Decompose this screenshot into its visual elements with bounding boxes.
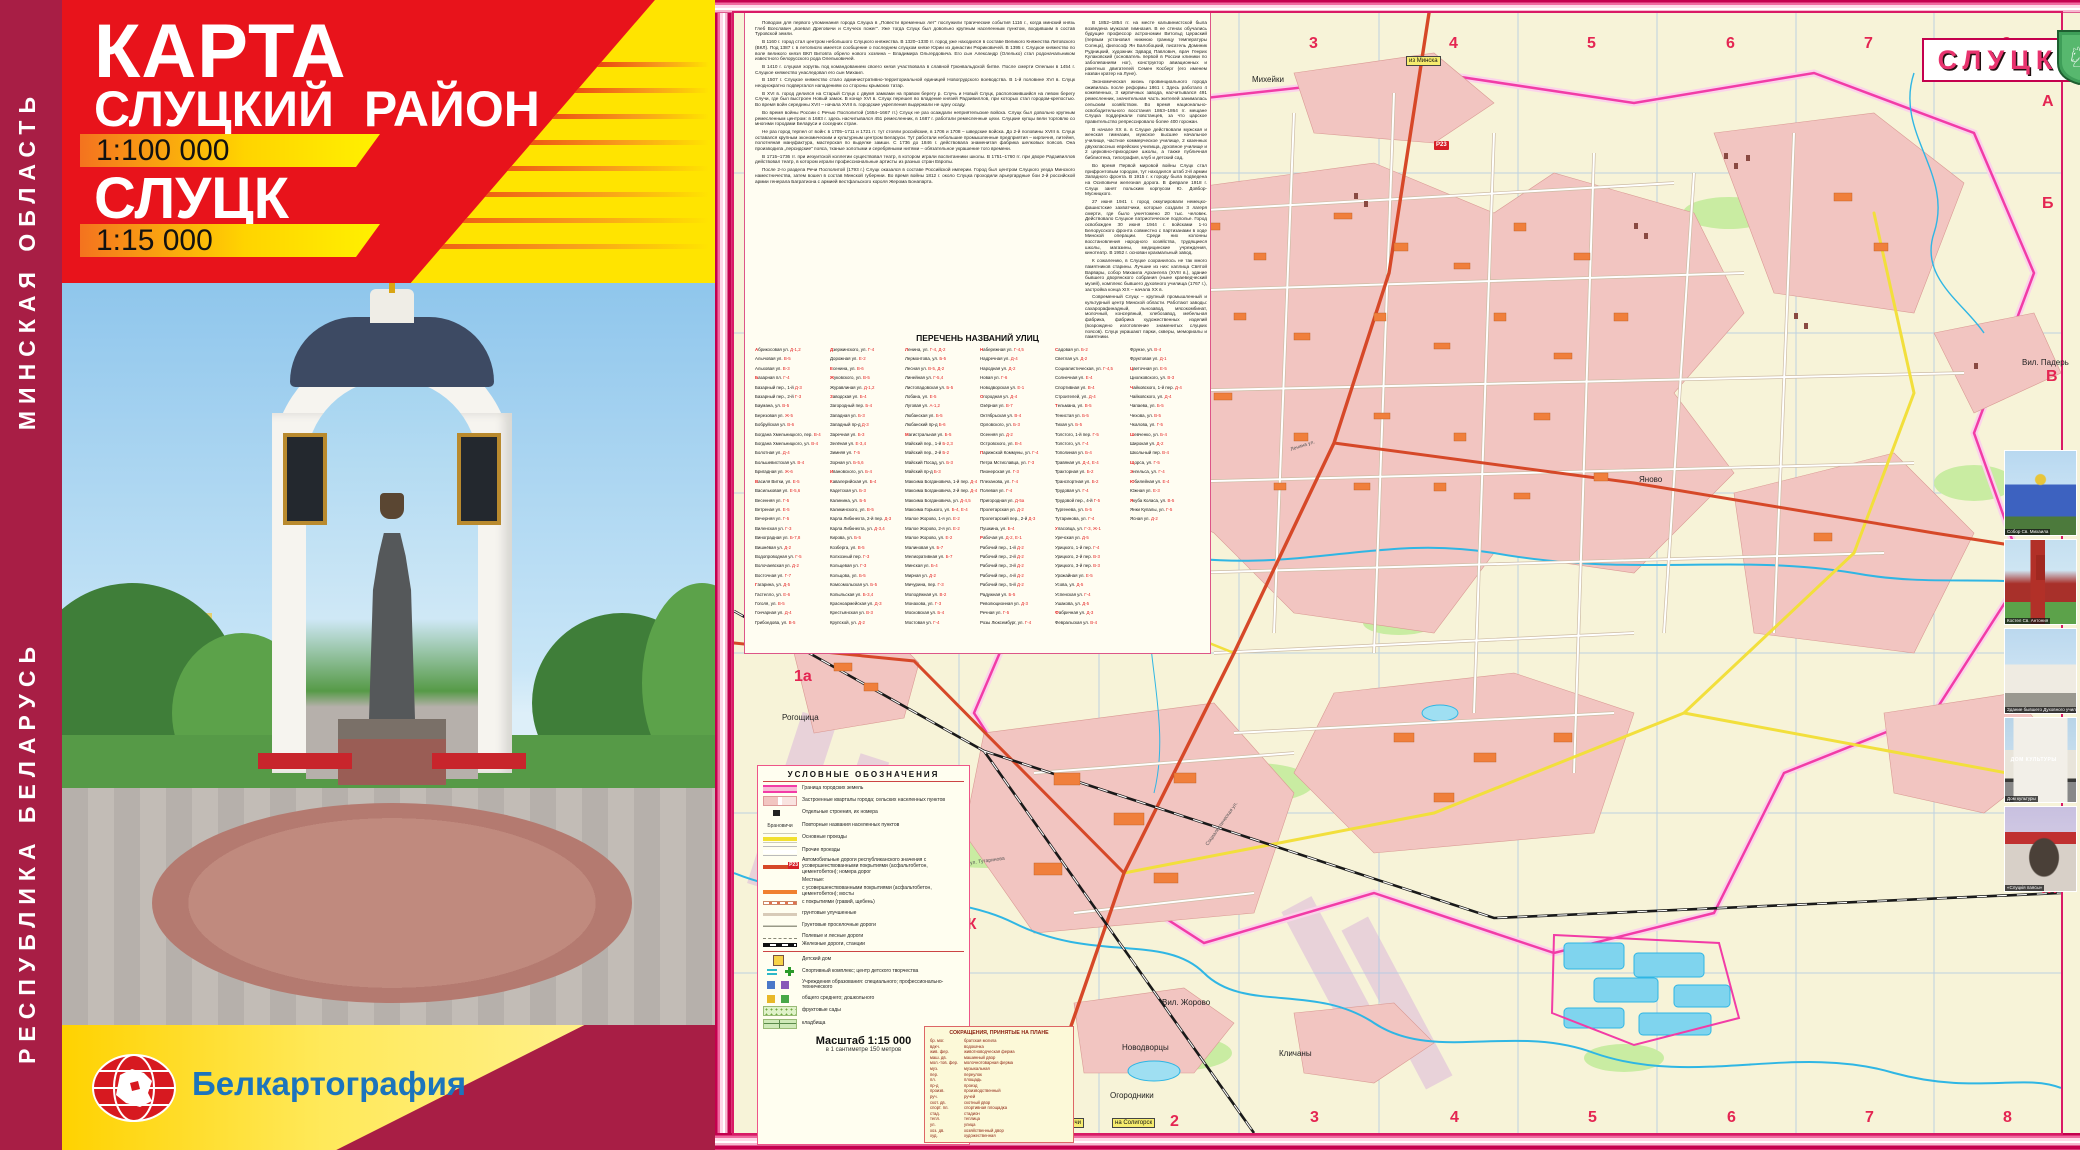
street-index-entry: Алычовая ул. В-5 xyxy=(755,354,825,363)
grid-reference: Д-1,2 xyxy=(790,347,801,352)
street-index-entry: Энгельса, ул. Г-4 xyxy=(1130,467,1200,476)
index-letter: Р xyxy=(980,535,983,540)
history-column-2: В 1852–1854 гг. на месте кальвинистской … xyxy=(1085,20,1207,342)
street-index-entry: Полевая ул. Г-4 xyxy=(980,486,1050,495)
history-paragraph: В 1160 г. город стал центром небольшого … xyxy=(755,39,1075,62)
street-index-entry: Виноградная ул. Б-7,8 xyxy=(755,533,825,542)
grid-reference: Б-5 xyxy=(859,573,866,578)
grid-reference: В-7 xyxy=(1006,403,1013,408)
index-letter: Щ xyxy=(1130,460,1134,465)
street-index-entry: Травяная ул. Д-4, Е-4 xyxy=(1055,458,1125,467)
index-letter: П xyxy=(980,450,983,455)
drive-main-symbol xyxy=(763,833,797,843)
street-index-entry: Трудовой пер., 4-й Г-5 xyxy=(1055,496,1125,505)
index-letter: Ч xyxy=(1130,385,1133,390)
street-index-entry: Лермонтова, ул. Б-5 xyxy=(905,354,975,363)
street-index-entry: Васильковая ул. Е-5,6 xyxy=(755,486,825,495)
photo-caption: Костел Св. Антония xyxy=(2005,618,2050,624)
street-index-entry: Московская ул. Б-4 xyxy=(905,608,975,617)
legend-label: с усовершенствованными покрытиями (асфал… xyxy=(802,886,964,898)
street-index-entry: Солнечная ул. Е-4 xyxy=(1055,373,1125,382)
grid-reference: Б-4 xyxy=(865,403,872,408)
settlement-label: Михейки xyxy=(1252,75,1284,84)
index-letter: Ф xyxy=(1055,610,1059,615)
monument-drum xyxy=(370,289,414,323)
grid-label: 2 xyxy=(1170,1113,1179,1131)
street-index-entry: Бобруйская ул. В-6 xyxy=(755,420,825,429)
grid-reference: Е-4 xyxy=(1086,375,1093,380)
grid-reference: В-5 xyxy=(867,507,874,512)
street-index-entry: Дорожная ул. Е-2 xyxy=(830,354,900,363)
legend-label: Железные дороги, станции xyxy=(802,942,865,948)
street-index-entry: Фрунзе, ул. В-4 xyxy=(1130,345,1200,354)
street-index-entry: Рабочий пер., 1-й Д-2 xyxy=(980,543,1050,552)
road-dirt-symbol xyxy=(763,921,797,931)
grid-reference: В-4 xyxy=(1088,385,1095,390)
street-index-entry: Успенская ул. Г-4 xyxy=(1055,590,1125,599)
grid-reference: Г-4, Д-2 xyxy=(930,347,946,352)
street-index-entry: Майский пр-д Б-3 xyxy=(905,467,975,476)
road-paved-symbol xyxy=(763,887,797,897)
legend-row: Прочие проезды xyxy=(763,846,964,856)
street-index-entry: Мостовая ул. Г-4 xyxy=(905,618,975,627)
grid-reference: Б-5 xyxy=(859,498,866,503)
grid-reference: Д-4 xyxy=(970,488,977,493)
cover-scale-city: 1:15 000 xyxy=(80,224,380,257)
grid-reference: Б-4 xyxy=(1085,450,1092,455)
street-index-entry: Богдана Хмельницкого, пер. В-4 xyxy=(755,430,825,439)
grid-reference: В-4 xyxy=(814,432,821,437)
street-index-entry: Тутаринова, ул. Г-4 xyxy=(1055,514,1125,523)
street-index-entry: Тельмана, ул. В-5 xyxy=(1055,401,1125,410)
street-index-entry: Урожайная ул. Е-5 xyxy=(1055,571,1125,580)
street-index-entry: Плеханова, ул. Г-4 xyxy=(980,477,1050,486)
index-letter: А xyxy=(755,347,758,352)
street-index-entry: Радужная ул. Б-5 xyxy=(980,590,1050,599)
grid-reference: Б-5 xyxy=(945,432,952,437)
red-bld-photo-art xyxy=(2005,540,2076,624)
street-index-entry: Минская ул. Б-4 xyxy=(905,561,975,570)
legend-label: Отдельные строения, их номера xyxy=(802,810,878,816)
grid-label: 6 xyxy=(1726,35,1735,53)
history-paragraph: В 1852–1854 гг. на месте кальвинистской … xyxy=(1085,20,1207,77)
grid-reference: Б-2 xyxy=(1087,469,1094,474)
grid-reference: Е-1 xyxy=(1017,385,1024,390)
monument-base-right xyxy=(432,753,526,769)
street-index-entry: Щорса, ул. Г-5 xyxy=(1130,458,1200,467)
grid-reference: Д-5а xyxy=(1015,498,1024,503)
cover-publisher-band: Белкартография xyxy=(62,1025,715,1150)
street-index-entry: Гоголя, ул. В-5 xyxy=(755,599,825,608)
grid-reference: Б-2 xyxy=(1092,479,1099,484)
grid-reference: Г-4 xyxy=(933,620,939,625)
grid-reference: В-5 xyxy=(782,403,789,408)
street-index-entry: Малое Жорово, ул. Е-2 xyxy=(905,533,975,542)
legend-label: кладбища xyxy=(802,1021,825,1027)
road-improved-symbol xyxy=(763,909,797,919)
sheet-frame-left xyxy=(715,0,734,1150)
street-index-entry: Тенистая ул. Б-5 xyxy=(1055,411,1125,420)
street-index-entry: Урицкого, 1-й пер. Г-4 xyxy=(1055,543,1125,552)
street-index-entry: Надречная ул. Д-4 xyxy=(980,354,1050,363)
monument-bell xyxy=(380,493,404,519)
index-letter: И xyxy=(830,469,833,474)
abbreviations-title: СОКРАЩЕНИЯ, ПРИНЯТЫЕ НА ПЛАНЕ xyxy=(930,1030,1068,1036)
street-index-entry: Янки Купалы, ул. Г-5 xyxy=(1130,505,1200,514)
grid-reference: Д-2 xyxy=(792,563,799,568)
grid-reference: В-5 xyxy=(858,545,865,550)
legend-row: Грунтовые проселочные дороги xyxy=(763,921,964,931)
street-index-entry: Рабочая ул. Д-2, Е-1 xyxy=(980,533,1050,542)
statue-pedestal xyxy=(338,719,446,785)
abbreviations-panel: СОКРАЩЕНИЯ, ПРИНЯТЫЕ НА ПЛАНЕ бр. мог.бр… xyxy=(924,1026,1074,1143)
legend-row: с покрытиями (гравий, щебень) xyxy=(763,900,964,906)
street-index-column: Дзержинского, ул. Г-4Дорожная ул. Е-2Есе… xyxy=(830,345,900,647)
grid-reference: Д-3 xyxy=(875,601,882,606)
grid-reference: Б-5 xyxy=(1085,507,1092,512)
street-index-entry: Мелиоративная ул. Б-7 xyxy=(905,552,975,561)
grid-reference: Г-4 xyxy=(1084,592,1090,597)
street-index-entry: Абрикосовая ул. Д-1,2 xyxy=(755,345,825,354)
street-index-column: Набережная ул. Г-4,5Надречная ул. Д-4Нар… xyxy=(980,345,1050,647)
grid-reference: Б-5 xyxy=(939,356,946,361)
street-index-entry: Базарная пл. Г-4 xyxy=(755,373,825,382)
pillar-plaque-left xyxy=(283,433,327,525)
street-index-entry: Чайковского, 1-й пер. Д-4 xyxy=(1130,383,1200,392)
grid-reference: Д-3 xyxy=(795,385,802,390)
street-name-label: Ленина ул. xyxy=(1290,439,1316,453)
grid-reference: Б-3,4 xyxy=(863,592,873,597)
legend-row: Железные дороги, станции xyxy=(763,942,964,948)
grid-reference: Г-5 xyxy=(783,516,789,521)
city-map[interactable]: 34567812345678АДЕЖАБВЖ1аМихейкиВил. Паде… xyxy=(734,13,2061,1133)
grid-reference: Г-3 xyxy=(935,601,941,606)
grid-reference: Г-5 xyxy=(854,450,860,455)
monument-spire xyxy=(389,283,395,293)
street-index-entry: Западная ул. Б-3 xyxy=(830,411,900,420)
index-letter: Ж xyxy=(830,375,834,380)
grid-reference: Г-3 xyxy=(1028,460,1034,465)
grid-reference: В-3 xyxy=(1093,563,1100,568)
index-letter: М xyxy=(905,432,909,437)
street-index-entry: Садовая ул. Б-2 xyxy=(1055,345,1125,354)
grid-label: 1а xyxy=(794,668,812,686)
street-index-entry: Загородный пер. Б-4 xyxy=(830,401,900,410)
grid-reference: Г-5 xyxy=(1166,507,1172,512)
legend-row: Основные проезды xyxy=(763,833,964,843)
index-letter: Д xyxy=(830,347,833,352)
street-index-entry: Урицкого, 2-й пер. В-3 xyxy=(1055,552,1125,561)
grid-reference: Д-4 xyxy=(1011,356,1018,361)
grid-reference: Е-5 xyxy=(1160,366,1167,371)
settlement-label: Вил. Падерь xyxy=(2022,358,2069,367)
street-index-entry: Гастелло, ул. Е-6 xyxy=(755,590,825,599)
street-index-entry: Ясная ул. Д-2 xyxy=(1130,514,1200,523)
grid-reference: Б-2,3 xyxy=(942,441,952,446)
grid-reference: Е-5,6 xyxy=(790,488,801,493)
boundary-symbol xyxy=(763,785,797,793)
grid-reference: Б-4 xyxy=(931,563,938,568)
index-letter: Ц xyxy=(1130,366,1133,371)
street-index-entry: Толстого, ул. Г-4 xyxy=(1055,439,1125,448)
grid-reference: Д-2 xyxy=(1080,356,1087,361)
grid-reference: Г-5 xyxy=(1094,498,1100,503)
legend-label: общего среднего; дошкольного xyxy=(802,996,874,1002)
history-column-1: Поводом для первого упоминания города Сл… xyxy=(755,20,1075,186)
grid-reference: В-5 xyxy=(784,356,791,361)
speed-line xyxy=(559,88,709,93)
index-letter: О xyxy=(980,394,983,399)
blocks-symbol xyxy=(763,796,797,806)
grid-reference: В-5, Д-2 xyxy=(928,366,944,371)
abbreviation-meaning: художественная xyxy=(964,1133,996,1139)
grid-reference: Б-7 xyxy=(936,545,943,550)
legend-row: фруктовые сады xyxy=(763,1006,964,1016)
grid-reference: Д-4 xyxy=(970,479,977,484)
street-index-entry: Западный пр-д Д-3 xyxy=(830,420,900,429)
building-sign-text: ДОМ КУЛЬТУРЫ xyxy=(2011,757,2057,763)
street-index-entry: Магистральная ул. Б-5 xyxy=(905,430,975,439)
orchard-symbol xyxy=(763,1006,797,1016)
street-index-entry: Трудовая ул. Г-4 xyxy=(1055,486,1125,495)
grid-label: 4 xyxy=(1449,35,1458,53)
grid-reference: В-5 xyxy=(778,601,785,606)
street-index-entry: Транспортная ул. Б-2 xyxy=(1055,477,1125,486)
grid-reference: В-3 xyxy=(866,610,873,615)
legend-label: с покрытиями (гравий, щебень) xyxy=(802,900,875,906)
street-index-entry: Южная ул. Е-3 xyxy=(1130,486,1200,495)
street-index-entry: Водопроводная ул. Г-5 xyxy=(755,552,825,561)
grid-reference: Е-5 xyxy=(930,394,937,399)
grid-reference: Г-5 xyxy=(1154,460,1160,465)
street-index-entry: Уласовца, ул. Г-3, Ж-1 xyxy=(1055,524,1125,533)
legend-row: Спортивный комплекс; центр детского твор… xyxy=(763,967,964,977)
name-symbol: Брановичи xyxy=(763,821,797,831)
grid-reference: Г-4 xyxy=(1088,516,1094,521)
grid-reference: Е-3,4 xyxy=(856,441,867,446)
grid-reference: В-3 xyxy=(1093,554,1100,559)
legend-rows: Граница городских земельЗастроенные квар… xyxy=(763,785,964,948)
poi-dd-symbol xyxy=(763,955,797,965)
grid-reference: В-4 xyxy=(811,441,818,446)
street-index-entry: Карла Либкнехта, ул. Д-3,4 xyxy=(830,524,900,533)
street-name-label: ул. Тутаринова xyxy=(970,856,1005,867)
grid-reference: Д-5 xyxy=(783,582,790,587)
edu2-symbol xyxy=(763,994,797,1004)
street-index-entry: Максима Богдановича, 1-й пер. Д-4 xyxy=(905,477,975,486)
street-index-column: Абрикосовая ул. Д-1,2Алычовая ул. В-5Аль… xyxy=(755,345,825,647)
legend-title: УСЛОВНЫЕ ОБОЗНАЧЕНИЯ xyxy=(763,770,964,782)
grid-reference: В-3 xyxy=(783,366,790,371)
street-index-entry: Осенняя ул. Д-2 xyxy=(980,430,1050,439)
cover-scale-district: 1:100 000 xyxy=(80,134,380,167)
legend-row: Граница городских земель xyxy=(763,785,964,793)
grid-reference: Е-2 xyxy=(953,526,960,531)
street-index-entry: Речная ул. Г-5 xyxy=(980,608,1050,617)
legend-row: общего среднего; дошкольного xyxy=(763,994,964,1004)
street-index-entry: Зелёная ул. Е-3,4 xyxy=(830,439,900,448)
grid-reference: Е-4 xyxy=(1163,479,1170,484)
street-index-entry: Озёрная ул. В-7 xyxy=(980,401,1050,410)
grid-reference: Б-6 xyxy=(939,422,946,427)
grid-reference: Г-3, Ж-1 xyxy=(1084,526,1101,531)
street-index-entry: Богдана Хмельницкого, ул. В-4 xyxy=(755,439,825,448)
legend-label: Полевые и лесные дороги xyxy=(802,934,863,940)
grid-reference: Д-4 xyxy=(1165,394,1172,399)
grid-reference: Б-5 xyxy=(946,385,953,390)
grid-reference: Г-5 xyxy=(783,498,789,503)
street-index-entry: Островского, ул. В-4 xyxy=(980,439,1050,448)
settlement-label: Новодворцы xyxy=(1122,1043,1169,1052)
street-index-entry: Линейная ул. Г-5,4 xyxy=(905,373,975,382)
grid-reference: Г-3 xyxy=(785,526,791,531)
legend-row: Местные: xyxy=(763,878,964,884)
grid-label: А xyxy=(2042,93,2054,111)
legend-label: Местные: xyxy=(802,878,824,884)
street-index-entry: Болотная ул. Д-4 xyxy=(755,448,825,457)
grid-reference: Д-1,2 xyxy=(864,385,875,390)
index-letter: Э xyxy=(1130,469,1133,474)
street-index-entry: Школьный пер. В-4 xyxy=(1130,448,1200,457)
street-index-entry: Мирная ул. Д-2 xyxy=(905,571,975,580)
street-index-columns: Абрикосовая ул. Д-1,2Алычовая ул. В-5Аль… xyxy=(755,345,1202,647)
grid-reference: Д-3 xyxy=(862,422,869,427)
legend-label: Прочие проезды xyxy=(802,848,840,854)
grid-reference: Б-4 xyxy=(937,610,944,615)
grid-reference: Д-4 xyxy=(1010,394,1017,399)
street-index-entry: Пролетарская ул. Д-2 xyxy=(980,505,1050,514)
grid-reference: Б-5 xyxy=(1082,413,1089,418)
street-index-entry: Рабочий пер., 5-й Д-2 xyxy=(980,580,1050,589)
street-index-entry: Ивановского, ул. Б-4 xyxy=(830,467,900,476)
landmark-photo: «Слуцкія паясы» xyxy=(2004,806,2077,892)
grid-reference: В-6 xyxy=(787,422,794,427)
white-bld-photo-art xyxy=(2005,629,2076,713)
street-index-entry: Пушкина, ул. Б-4 xyxy=(980,524,1050,533)
street-index-entry: Ушакова, ул. Д-5 xyxy=(1055,599,1125,608)
photo-caption: «Слуцкія паясы» xyxy=(2005,885,2044,891)
legend-row: Полевые и лесные дороги xyxy=(763,934,964,940)
street-index-entry: Грибоедова, ул. В-5 xyxy=(755,618,825,627)
pillar-plaque-right xyxy=(457,433,501,525)
grid-reference: Д-4 xyxy=(783,450,790,455)
settlement-label: Огородники xyxy=(1110,1091,1154,1100)
street-index-entry: Ленина, ул. Г-4, Д-2 xyxy=(905,345,975,354)
street-index-title: ПЕРЕЧЕНЬ НАЗВАНИЙ УЛИЦ xyxy=(745,333,1210,343)
street-index-entry: Якуба Коласа, ул. В-5 xyxy=(1130,496,1200,505)
cover-title-slutsk: СЛУЦК xyxy=(94,170,289,228)
region-label-republic: РЕСПУБЛИКА БЕЛАРУСЬ xyxy=(14,640,41,1064)
index-letter: Т xyxy=(1055,403,1058,408)
cover-title-karta: КАРТА xyxy=(94,14,346,90)
grid-reference: Д-4 xyxy=(1089,394,1096,399)
grid-reference: Д-2, Е-1 xyxy=(1006,535,1022,540)
settlement-label: Вил. Жорово xyxy=(1162,998,1210,1007)
legend-row: грунтовые улучшенные xyxy=(763,909,964,919)
road-number-label: Р23 xyxy=(1434,141,1449,150)
grid-reference: Г-5 xyxy=(795,554,801,559)
slutsk-coat-of-arms-icon: ♘ xyxy=(2056,29,2080,85)
drive-other-symbol xyxy=(763,846,797,856)
city-plan-sheet: 34567812345678АДЕЖАБВЖ1аМихейкиВил. Паде… xyxy=(715,0,2080,1150)
grid-reference: Е-2 xyxy=(859,356,866,361)
grid-reference: Д-4, Е-4 xyxy=(1083,460,1099,465)
street-index-entry: Монахова, ул. Г-3 xyxy=(905,599,975,608)
grid-reference: Б-5 xyxy=(936,413,943,418)
history-paragraph: В 1410 г. слуцкая хоругвь под командован… xyxy=(755,64,1075,75)
grid-label: 4 xyxy=(1450,1109,1459,1127)
street-index-entry: Зорная ул. Б-5,6 xyxy=(830,458,900,467)
street-index-entry: Тополиная ул. Б-4 xyxy=(1055,448,1125,457)
street-index-entry: Вишнёвая ул. Д-2 xyxy=(755,543,825,552)
street-index-column: Ленина, ул. Г-4, Д-2Лермонтова, ул. Б-5Л… xyxy=(905,345,975,647)
grid-reference: Б-3 xyxy=(1013,422,1020,427)
grid-reference: Б-5 xyxy=(854,535,861,540)
road-gravel-symbol xyxy=(763,901,797,905)
grid-reference: Е-3 xyxy=(1153,488,1160,493)
grid-reference: В-4 xyxy=(1090,620,1097,625)
grid-reference: Д-3 xyxy=(1028,516,1035,521)
building-symbol xyxy=(763,808,797,818)
street-index-entry: Строителей, ул. Д-4 xyxy=(1055,392,1125,401)
grid-reference: Д-5 xyxy=(1082,601,1089,606)
settlement-label: Яново xyxy=(1639,475,1662,484)
grid-reference: Д-4 xyxy=(785,610,792,615)
grid-label: 6 xyxy=(1727,1109,1736,1127)
grid-label: 3 xyxy=(1309,35,1318,53)
grid-reference: Д-2 xyxy=(1017,545,1024,550)
street-index-entry: Чехова, ул. В-5 xyxy=(1130,411,1200,420)
grid-reference: Д-2 xyxy=(1017,507,1024,512)
cemetery-symbol xyxy=(763,1019,797,1029)
grid-reference: В-4 xyxy=(1154,347,1161,352)
grid-reference: Б-4 xyxy=(865,469,872,474)
belkartografia-logo-icon xyxy=(92,1053,176,1123)
history-paragraph: В 1507 г. Слуцкое княжество стало админи… xyxy=(755,77,1075,88)
grid-reference: Д-2 xyxy=(1017,554,1024,559)
edu1-symbol xyxy=(763,980,797,990)
grid-reference: Д-2 xyxy=(1017,573,1024,578)
grid-reference: Г-5,4 xyxy=(933,375,943,380)
history-paragraph: Поводом для первого упоминания города Сл… xyxy=(755,20,1075,37)
grid-label: 8 xyxy=(2003,1109,2012,1127)
poi-sport-symbol xyxy=(763,967,797,977)
grid-reference: Г-3 xyxy=(795,394,801,399)
street-index-entry: Малое Жорово, 1-я ул. Е-2 xyxy=(905,514,975,523)
street-index-entry: Максима Богдановича, ул. Д-4,5 xyxy=(905,496,975,505)
grid-reference: Б-5 xyxy=(1157,403,1164,408)
street-index-entry: Гончарная ул. Д-4 xyxy=(755,608,825,617)
landmark-photo: Собор Св. Михаила xyxy=(2004,450,2077,536)
street-index-entry: Любанский пр-д Б-6 xyxy=(905,420,975,429)
grid-reference: Б-2 xyxy=(1081,347,1088,352)
street-index-entry: Орловского, ул. Б-3 xyxy=(980,420,1050,429)
street-index-entry: Кавалерийская ул. Б-4 xyxy=(830,477,900,486)
road-field-symbol xyxy=(763,938,797,939)
grid-reference: Ж-6 xyxy=(785,469,793,474)
street-index-entry: Фруктовая ул. Д-1 xyxy=(1130,354,1200,363)
legend-row: Р23Автомобильные дороги республиканского… xyxy=(763,858,964,875)
index-letter: Е xyxy=(830,366,833,371)
street-index-entry: Народная ул. Д-2 xyxy=(980,364,1050,373)
history-paragraph: Во время войны России с Речью Посполитой… xyxy=(755,110,1075,127)
grid-label: 5 xyxy=(1588,1109,1597,1127)
grid-reference: Е-5 xyxy=(783,507,790,512)
monument-base-left xyxy=(258,753,352,769)
street-index-entry: Огородная ул. Д-4 xyxy=(980,392,1050,401)
grid-reference: Д-3 xyxy=(1021,601,1028,606)
map-sheet-scan: МИНСКАЯ ОБЛАСТЬ РЕСПУБЛИКА БЕЛАРУСЬ КАРТ… xyxy=(0,0,2080,1150)
